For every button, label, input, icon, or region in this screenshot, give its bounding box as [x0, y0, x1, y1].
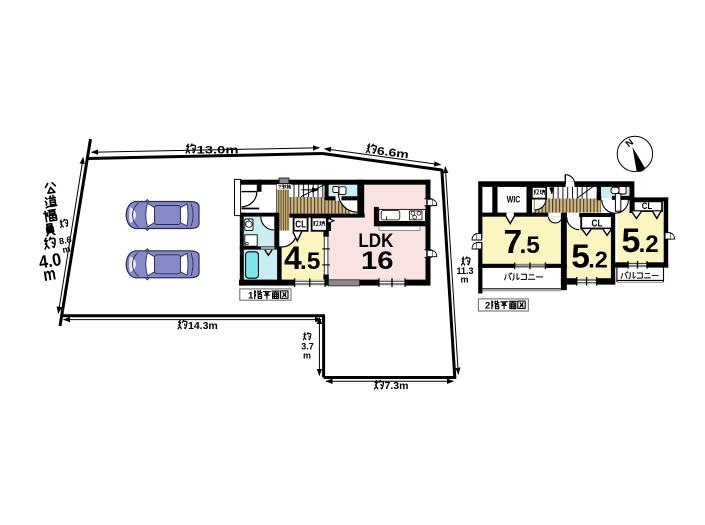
svg-text:CL: CL	[295, 219, 306, 230]
svg-text:.2: .2	[588, 247, 608, 273]
svg-text:m: m	[303, 351, 311, 361]
svg-text:CL: CL	[642, 201, 653, 212]
svg-text:m: m	[460, 274, 468, 284]
svg-text:5: 5	[622, 222, 641, 260]
svg-text:.5: .5	[300, 248, 320, 275]
svg-text:13.0m: 13.0m	[197, 145, 239, 157]
svg-text:WIC: WIC	[507, 194, 521, 205]
svg-text:1: 1	[248, 290, 254, 301]
svg-text:2: 2	[485, 301, 490, 312]
svg-text:.5: .5	[520, 232, 540, 259]
svg-text:16: 16	[361, 247, 394, 275]
svg-text:5: 5	[571, 239, 590, 276]
svg-text:.2: .2	[639, 231, 659, 258]
svg-text:14.3m: 14.3m	[188, 320, 218, 332]
svg-text:7.3m: 7.3m	[385, 380, 409, 392]
svg-text:CL: CL	[592, 218, 603, 229]
